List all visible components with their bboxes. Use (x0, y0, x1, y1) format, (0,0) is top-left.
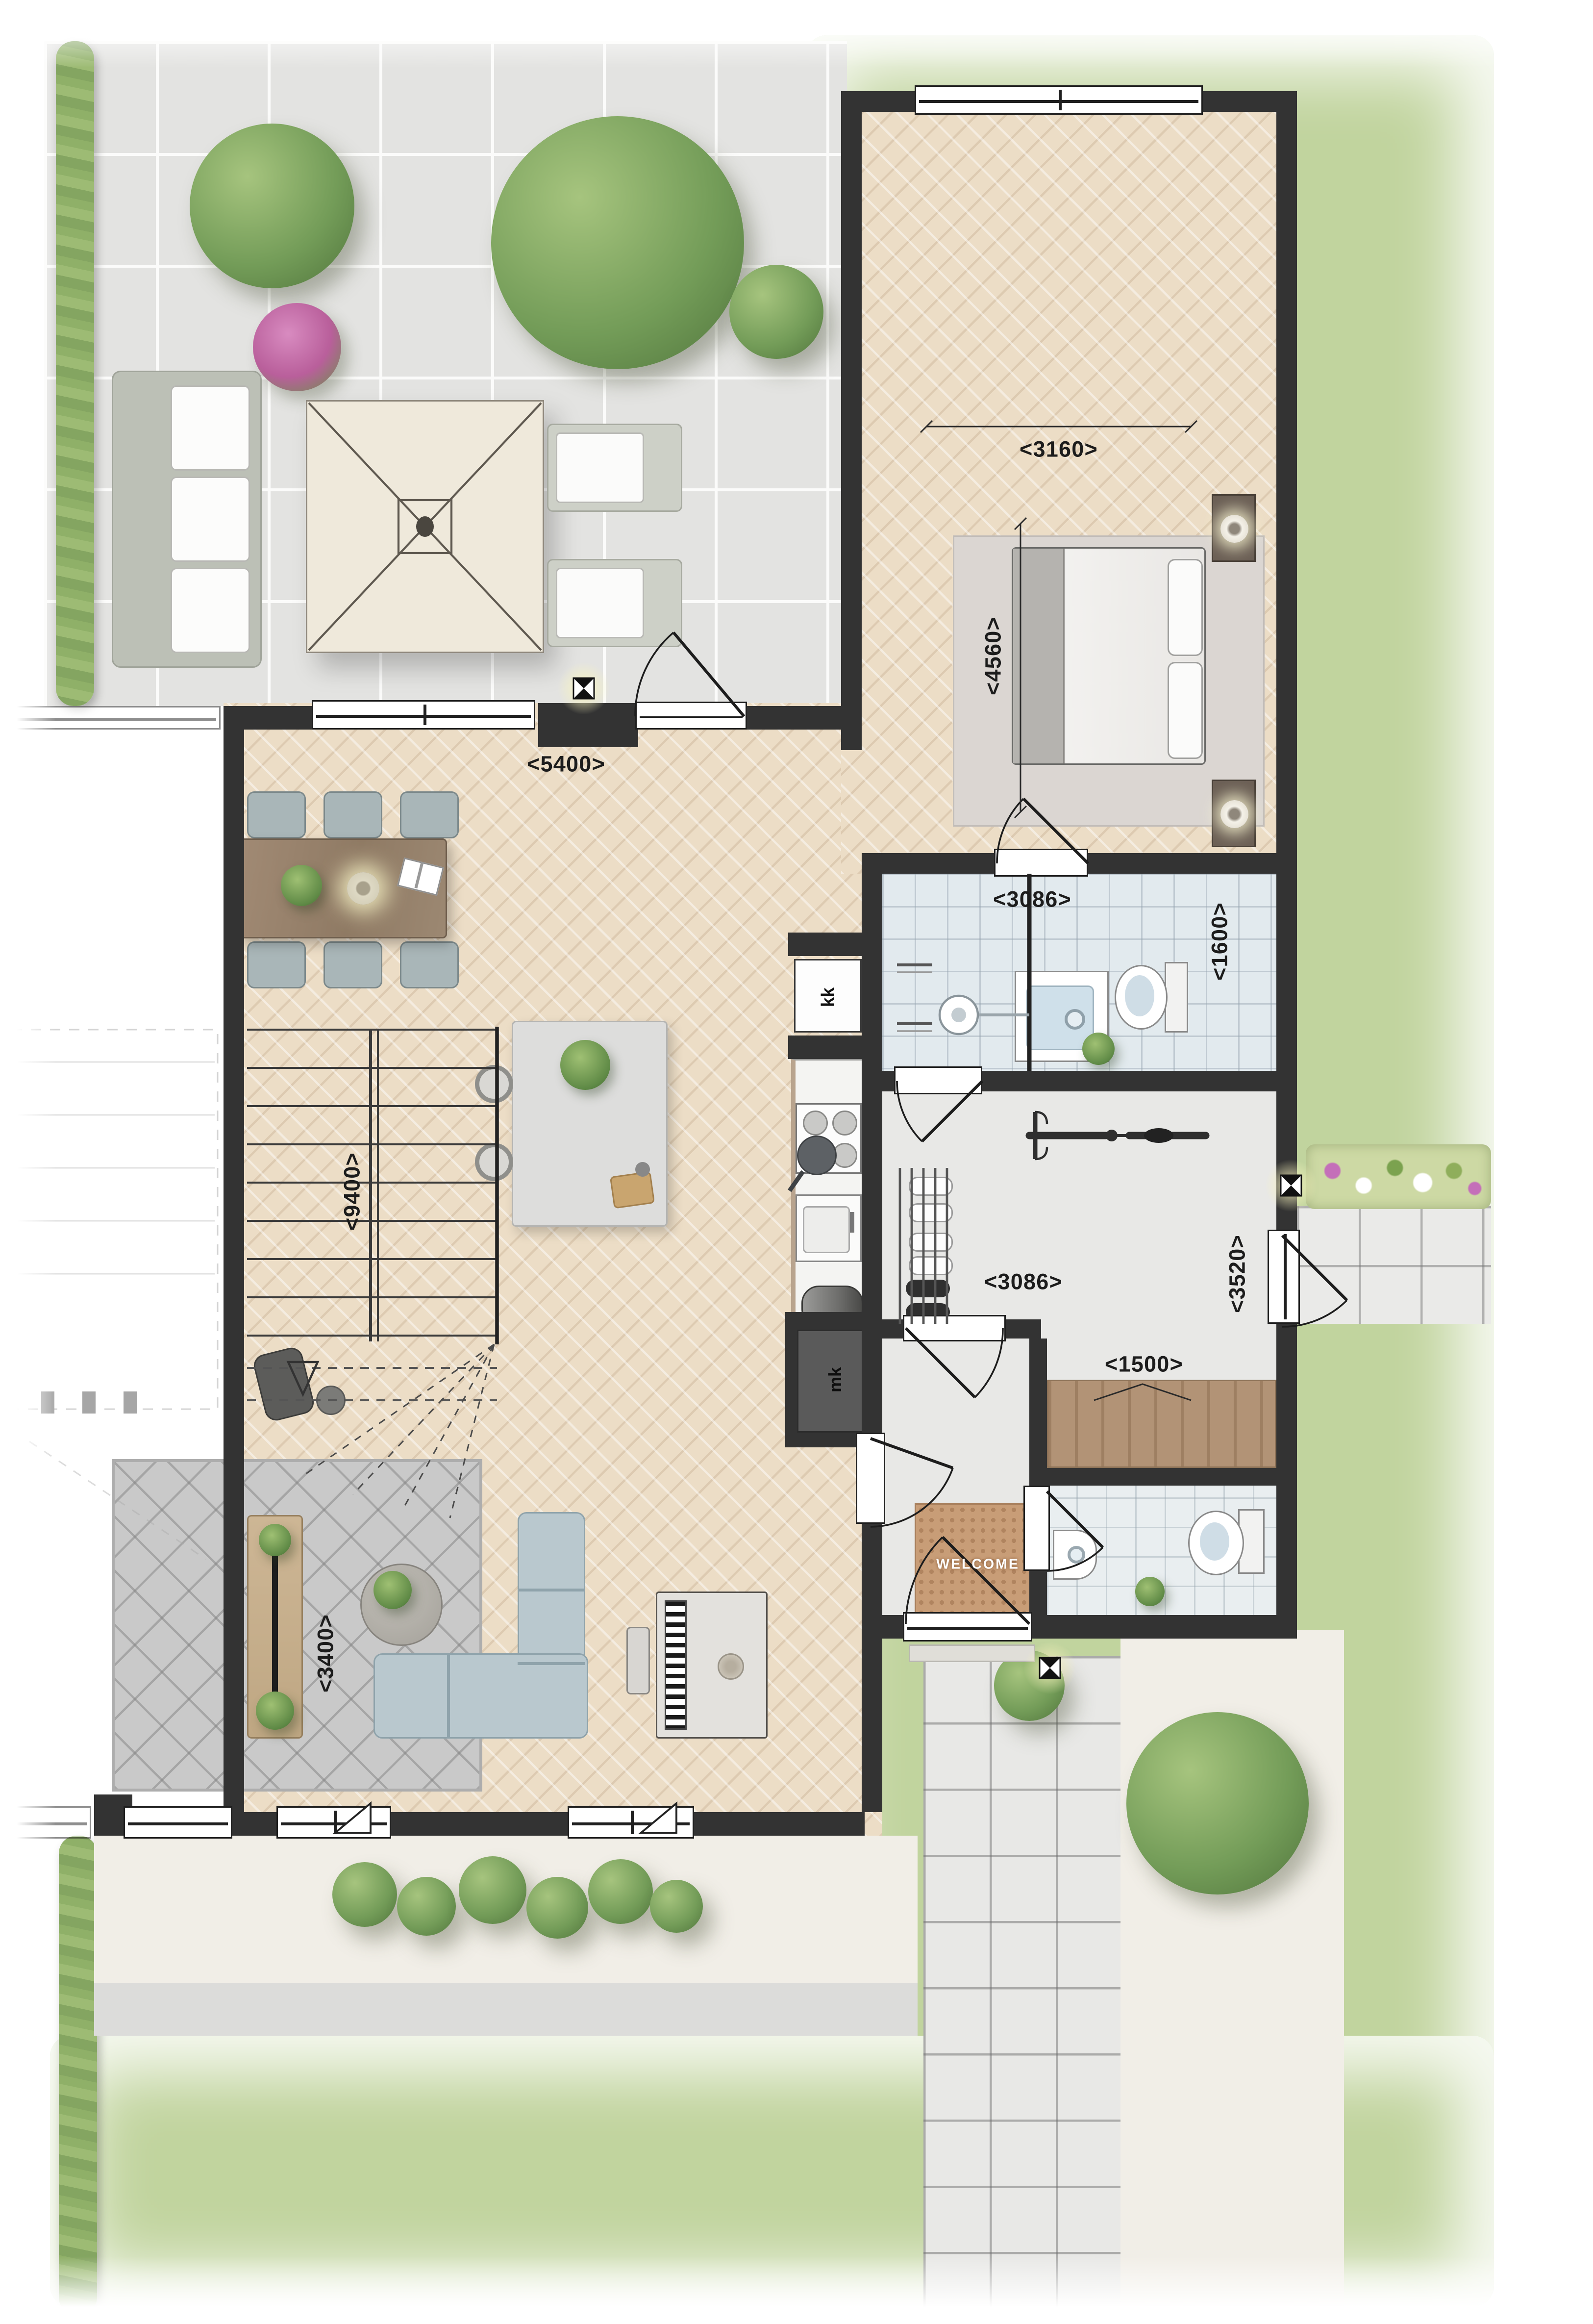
shoe-rack (900, 1168, 947, 1324)
dim-hall-depth: <3520> (1226, 1235, 1251, 1313)
dim-living-depth: <9400> (341, 1152, 366, 1231)
floor-plan-canvas: <3160> <4560> <5400> <3086> <1600> <9400… (0, 0, 1593, 2324)
dim-hall-width: <3086> (984, 1270, 1063, 1295)
floor-plan-screenshot: <3160> <4560> <5400> <3086> <1600> <9400… (0, 0, 1593, 2324)
neighbor-plan-faded (12, 1030, 218, 1559)
dim-entrance-width: <1500> (1105, 1353, 1183, 1378)
dim-bathroom-depth: <1600> (1208, 902, 1233, 981)
plan-linework (0, 0, 1593, 2324)
dim-bedroom-depth: <4560> (982, 617, 1007, 695)
label-fridge-kk: kk (818, 987, 838, 1007)
light-symbol (573, 678, 1301, 1678)
bicycle-icon (1029, 1112, 1206, 1159)
understairs-dashed-fan (306, 1344, 494, 1518)
window-vent-symbols (335, 1803, 676, 1833)
doormat-text: WELCOME (936, 1557, 1020, 1573)
dim-lounge-depth: <3400> (314, 1614, 339, 1692)
parasol-ribs (309, 403, 541, 650)
door-swings (635, 632, 1347, 1624)
staircase (247, 1027, 497, 1400)
dim-bathroom-width: <3086> (993, 888, 1071, 913)
label-meter-mk: mk (825, 1367, 846, 1392)
dim-bedroom-width: <3160> (1020, 438, 1098, 463)
dim-living-width: <5400> (527, 753, 605, 778)
